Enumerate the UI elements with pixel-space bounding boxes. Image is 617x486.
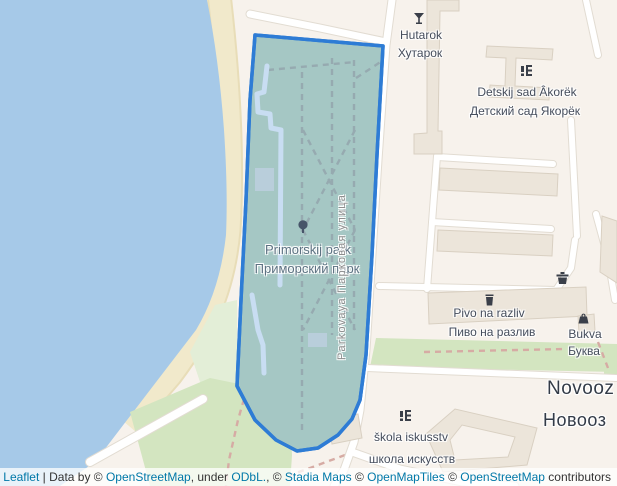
- building-edge: [600, 216, 617, 283]
- label-shkola-cyrillic: школа искусств: [369, 452, 455, 466]
- attribution-text: , under: [191, 470, 232, 484]
- waste-basket-icon: [556, 271, 569, 289]
- stadia-maps-link[interactable]: Stadia Maps: [285, 470, 352, 484]
- building-block: [437, 230, 553, 256]
- label-pivo-cyrillic: Пиво на разлив: [449, 325, 536, 339]
- label-hutarok-cyrillic: Хутарок: [398, 46, 442, 60]
- school-icon: [400, 409, 412, 427]
- label-detsad-latin: Detskij sad Âkorëk: [477, 85, 576, 99]
- odbl-link[interactable]: ODbL.: [231, 470, 266, 484]
- attribution-text: ©: [445, 470, 461, 484]
- label-detsad-cyrillic: Детский сад Якорёк: [470, 104, 580, 118]
- label-street-parkovaya: Parkovaya Парковая улица: [336, 160, 352, 360]
- building-block: [439, 168, 558, 196]
- label-shkola-latin: škola iskusstv: [374, 430, 448, 444]
- attribution-text: ©: [352, 470, 368, 484]
- label-bukva-latin: Bukva: [568, 327, 601, 341]
- tree-icon: [296, 220, 310, 239]
- attribution-bar: Leaflet | Data by © OpenStreetMap, under…: [0, 468, 617, 486]
- attribution-text: contributors: [545, 470, 611, 484]
- leaflet-map[interactable]: Hutarok Хутарок Detskij sad Âkorëk Детск…: [0, 0, 617, 486]
- leaflet-link[interactable]: Leaflet: [3, 470, 39, 484]
- label-place-cyrillic: Новооз: [543, 410, 606, 431]
- kindergarten-icon: [521, 64, 533, 82]
- park-building: [308, 333, 327, 347]
- osm-contributors-link[interactable]: OpenStreetMap: [460, 470, 545, 484]
- label-pivo-latin: Pivo na razliv: [453, 306, 524, 320]
- label-hutarok-latin: Hutarok: [400, 28, 442, 42]
- label-bukva-cyrillic: Буква: [568, 344, 600, 358]
- openmaptiles-link[interactable]: OpenMapTiles: [367, 470, 445, 484]
- osm-link[interactable]: OpenStreetMap: [106, 470, 191, 484]
- attribution-text: | Data by ©: [39, 470, 106, 484]
- park-building: [255, 168, 274, 191]
- label-place-latin: Novooz: [547, 378, 614, 400]
- attribution-text: , ©: [266, 470, 285, 484]
